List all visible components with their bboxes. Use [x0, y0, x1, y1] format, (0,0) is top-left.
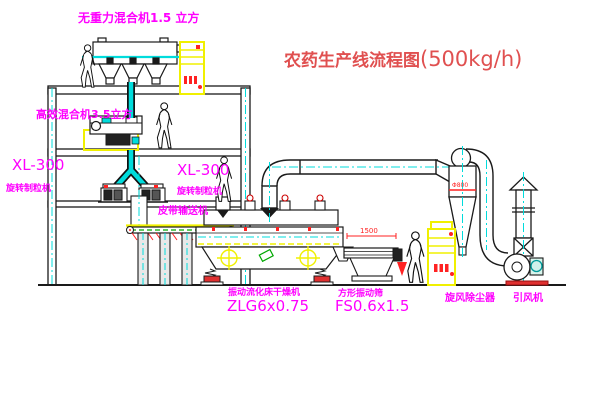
title-text: 农药生产线流程图 [284, 51, 420, 71]
label-high-mixer: 高效混合机3.5立方 [36, 109, 133, 120]
title-capacity: (500kg/h) [420, 47, 522, 71]
flowsheet-canvas: 无重力混合机1.5 立方 农药生产线流程图(500kg/h) 高效混合机3.5立… [0, 0, 600, 403]
dimension-cyclone-diameter: Φ800 [452, 183, 468, 189]
label-granulator-mid-model: XL-300 [177, 163, 229, 178]
diagram-title: 农药生产线流程图(500kg/h) [284, 49, 522, 70]
label-belt-conveyor: 皮带输送机 [158, 207, 208, 217]
vibrating-screen [344, 233, 407, 281]
label-granulator-mid-name: 旋转制粒机 [177, 188, 222, 197]
cyclone-separator [449, 146, 508, 266]
person-figure [407, 232, 424, 282]
label-fan: 引风机 [513, 294, 543, 304]
dimension-screen-length: 1500 [360, 228, 378, 235]
induced-draft-fan [504, 254, 548, 285]
control-cabinet-lower [428, 222, 455, 285]
label-granulator-left-name: 旋转制粒机 [6, 185, 51, 194]
label-dryer-model: ZLG6x0.75 [227, 299, 309, 314]
control-cabinet-upper [180, 42, 204, 94]
person-figure [157, 103, 172, 148]
gravity-free-mixer [82, 38, 192, 84]
label-cyclone: 旋风除尘器 [445, 294, 495, 304]
high-efficiency-mixer [84, 116, 142, 150]
label-gravity-mixer: 无重力混合机1.5 立方 [78, 12, 199, 24]
label-granulator-left-model: XL-300 [12, 158, 64, 173]
label-screen-model: FS0.6x1.5 [335, 299, 409, 314]
